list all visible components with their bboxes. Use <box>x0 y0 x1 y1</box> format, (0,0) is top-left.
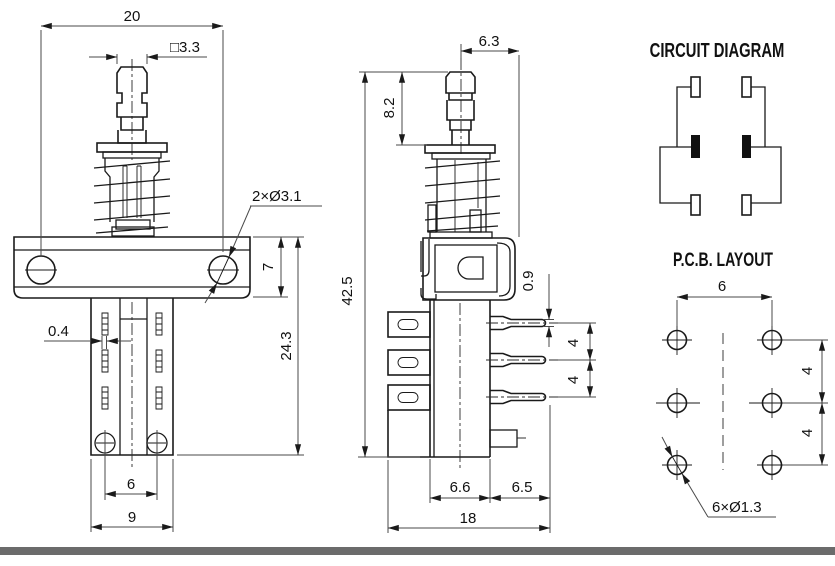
front-mounting-bracket <box>14 237 250 298</box>
side-plunger <box>425 58 495 155</box>
dim-4-pitch1: 4 <box>565 339 582 347</box>
pcb-dim-4-row1: 4 <box>799 367 816 375</box>
dim-6-3: 6.3 <box>479 33 500 50</box>
dim-18: 18 <box>460 510 477 527</box>
front-terminal-strip <box>102 313 108 335</box>
circuit-terminal <box>691 195 700 215</box>
dim-0-4: 0.4 <box>48 323 69 340</box>
dim-4-pitch2: 4 <box>565 376 582 384</box>
switch-technical-drawing: 20 □3.3 2×Ø3.1 7 24.3 0.4 6 <box>0 0 835 566</box>
circuit-terminal <box>742 77 751 97</box>
front-spring-section <box>94 152 170 236</box>
side-flange <box>425 145 495 153</box>
circuit-common-contact <box>691 135 700 158</box>
circuit-wires <box>660 87 781 203</box>
circuit-terminal <box>742 195 751 215</box>
front-terminal-strip <box>156 313 162 335</box>
side-solder-lug <box>388 350 430 375</box>
dim-20: 20 <box>124 8 141 25</box>
side-housing-slot <box>458 257 483 279</box>
front-terminal-strip <box>102 350 108 372</box>
front-terminal-strip <box>156 350 162 372</box>
pcb-layout-title: P.C.B. LAYOUT <box>673 249 774 271</box>
dim-8-2: 8.2 <box>381 98 398 119</box>
circuit-common-contact <box>742 135 751 158</box>
dim-9: 9 <box>128 509 136 526</box>
pcb-layout: P.C.B. LAYOUT 6 4 4 6×Ø1.3 <box>656 249 828 517</box>
circuit-terminal <box>691 77 700 97</box>
footer-bar <box>0 547 835 555</box>
side-spring-section <box>425 153 500 238</box>
dim-42-5: 42.5 <box>339 276 356 305</box>
pcb-hole-crosshairs <box>656 326 793 480</box>
pcb-dim-4-row2: 4 <box>799 429 816 437</box>
dim-7: 7 <box>260 263 277 271</box>
front-terminal-strip <box>156 387 162 409</box>
front-view: 20 □3.3 2×Ø3.1 7 24.3 0.4 6 <box>14 8 322 532</box>
pcb-dim-hole-callout: 6×Ø1.3 <box>712 499 762 516</box>
dim-6: 6 <box>127 476 135 493</box>
front-dimensions: 20 □3.3 2×Ø3.1 7 24.3 0.4 6 <box>41 8 322 532</box>
dim-24-3: 24.3 <box>278 331 295 360</box>
pcb-dim-6: 6 <box>718 278 726 295</box>
side-body <box>388 300 558 470</box>
dim-square-3-3: □3.3 <box>170 39 200 56</box>
circuit-diagram: CIRCUIT DIAGRAM <box>650 39 785 215</box>
dim-0-9: 0.9 <box>520 271 537 292</box>
side-solder-lug <box>388 312 430 337</box>
circuit-diagram-title: CIRCUIT DIAGRAM <box>650 39 785 62</box>
front-body <box>91 298 173 468</box>
dim-6-6: 6.6 <box>450 479 471 496</box>
side-solder-lug <box>388 385 430 410</box>
front-terminal-strip <box>102 387 108 409</box>
side-dimensions: 6.3 8.2 42.5 0.9 4 4 6.6 6.5 18 <box>339 33 596 533</box>
dim-6-5: 6.5 <box>512 479 533 496</box>
dim-2xd3-1: 2×Ø3.1 <box>252 188 302 205</box>
side-view: 6.3 8.2 42.5 0.9 4 4 6.6 6.5 18 <box>339 33 596 533</box>
side-housing <box>421 238 515 300</box>
front-plunger <box>97 59 167 160</box>
side-locating-peg <box>490 430 517 447</box>
